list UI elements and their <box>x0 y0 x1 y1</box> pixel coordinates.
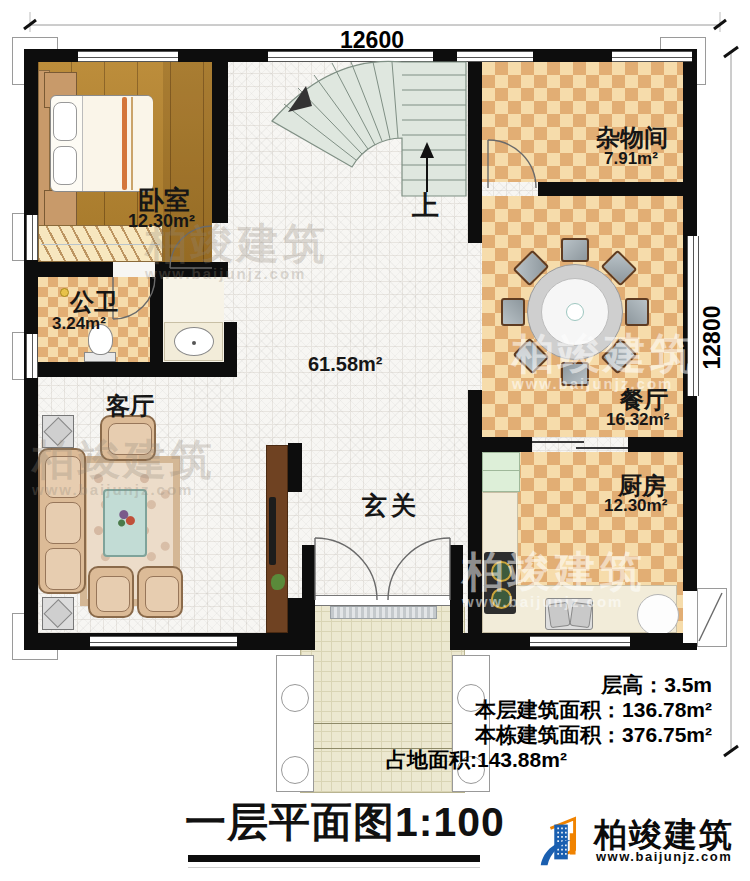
info-line: 占地面积:143.88m² <box>380 747 712 772</box>
info-label: 层高： <box>601 673 664 696</box>
room-area-bedroom: 12.30m² <box>128 211 195 232</box>
wall-tv-upper <box>288 443 302 492</box>
info-label: 本层建筑面积： <box>475 698 622 721</box>
porch-column <box>276 655 314 792</box>
brand-url: www.baijunjz.com <box>596 849 732 864</box>
side-table <box>42 597 74 630</box>
brand-logo-icon <box>533 812 591 870</box>
sofa <box>38 448 86 594</box>
bed-duvet-stripe <box>122 97 127 190</box>
bath-light <box>60 288 69 297</box>
stairs-up-label: 上 <box>412 188 439 224</box>
bedroom-floor-shade <box>163 62 212 262</box>
armchair <box>88 566 134 618</box>
bed-pillow <box>53 102 77 141</box>
kitchen-back-door-landing <box>697 588 727 647</box>
side-table <box>42 415 74 448</box>
info-label: 本栋建筑面积： <box>475 723 622 746</box>
info-line: 本栋建筑面积：376.75m² <box>380 722 712 747</box>
plan-title-scale: 1:100 <box>395 799 505 845</box>
title-underline <box>188 855 480 862</box>
dining-chair <box>625 298 649 326</box>
plant <box>271 574 285 590</box>
room-area-storage: 7.91m² <box>604 149 658 169</box>
window <box>612 51 692 62</box>
wash-basin <box>174 327 214 356</box>
entry-mat <box>330 606 437 619</box>
fridge <box>482 452 520 492</box>
bed-duvet-stripe <box>131 97 133 190</box>
room-label-foyer: 玄关 <box>362 489 420 522</box>
stove <box>484 552 516 614</box>
wardrobe-rod <box>41 244 160 245</box>
room-label-living: 客厅 <box>106 390 154 422</box>
water-heater <box>637 594 679 636</box>
info-line: 层高：3.5m <box>380 672 712 697</box>
dining-chair <box>501 298 525 326</box>
dimension-top-label: 12600 <box>317 27 427 54</box>
wall-foyer-left <box>302 545 315 650</box>
kitchen-sink <box>545 598 593 630</box>
window <box>530 636 630 647</box>
bed-pillow <box>53 146 77 185</box>
wall-bath-bottom <box>24 362 237 377</box>
nightstand <box>44 190 77 226</box>
dimension-right-label: 12800 <box>699 283 726 393</box>
tv <box>269 497 276 565</box>
wall-storage-bottom <box>538 182 697 196</box>
armchair <box>137 566 183 618</box>
wall-tv-lower <box>288 598 302 650</box>
hall-area-label: 61.58m² <box>308 353 383 376</box>
plan-title-text: 一层平面图 <box>185 799 395 845</box>
info-value: 143.88m² <box>477 748 567 771</box>
dining-chair <box>561 362 589 386</box>
dining-table-center <box>566 303 584 321</box>
info-value: 3.5m <box>664 673 712 696</box>
window <box>90 636 237 647</box>
room-area-dining: 16.32m² <box>606 410 669 430</box>
window <box>457 51 533 62</box>
coffee-table <box>103 489 147 557</box>
wall-vanity-right <box>224 322 237 377</box>
floor-plan-page: 柏竣建筑 www.baijunjz.com 柏竣建筑 www.baijunjz.… <box>0 0 750 881</box>
wall-foyer-right <box>450 545 463 650</box>
room-area-kitchen: 12.30m² <box>604 496 667 516</box>
info-line: 本层建筑面积：136.78m² <box>380 697 712 722</box>
wall-bath-divider <box>150 277 163 362</box>
bathroom-door-opening <box>113 262 155 277</box>
dining-chair <box>561 238 589 262</box>
plan-title: 一层平面图1:100 <box>185 795 505 850</box>
wall-hall-right-stub <box>468 182 482 243</box>
wall-bedroom-right-upper <box>212 49 228 223</box>
room-area-bathroom: 3.24m² <box>52 314 106 334</box>
info-value: 136.78m² <box>622 698 712 721</box>
kitchen-back-door-opening <box>683 591 697 643</box>
window <box>687 236 699 396</box>
wall-dining-kitchen-right <box>628 437 697 452</box>
wall-storage-left <box>468 49 482 182</box>
window <box>26 334 38 378</box>
info-label: 占地面积: <box>386 748 477 771</box>
title-underline-thin <box>188 867 480 868</box>
plan-info-block: 层高：3.5m 本层建筑面积：136.78m² 本栋建筑面积：376.75m² … <box>380 672 712 772</box>
info-value: 376.75m² <box>622 723 712 746</box>
entry-threshold <box>315 595 450 606</box>
bed-duvet <box>82 96 153 191</box>
wall-dining-left-stub <box>468 390 482 437</box>
wall-kitchen-left <box>468 437 482 650</box>
window <box>78 51 178 62</box>
window <box>26 215 38 260</box>
